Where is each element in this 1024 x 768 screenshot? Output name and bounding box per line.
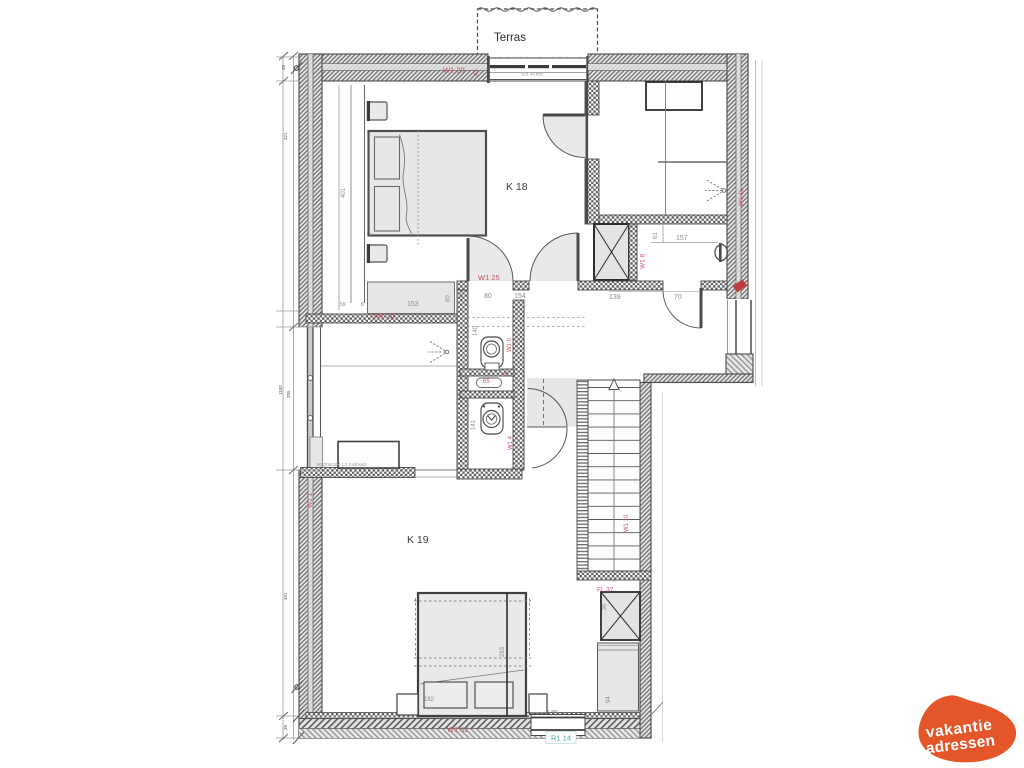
svg-text:W1 25: W1 25 xyxy=(478,273,500,282)
svg-text:182: 182 xyxy=(424,697,435,703)
svg-text:65: 65 xyxy=(504,371,510,377)
svg-text:90x200x200 1:1 0.60 kast: 90x200x200 1:1 0.60 kast xyxy=(317,462,367,467)
svg-text:140: 140 xyxy=(473,325,479,336)
svg-text:401: 401 xyxy=(283,592,288,600)
svg-text:K 19: K 19 xyxy=(407,534,429,546)
svg-text:Terras: Terras xyxy=(494,32,526,44)
svg-text:61: 61 xyxy=(653,232,659,239)
svg-text:154: 154 xyxy=(514,293,526,300)
svg-text:W1 24: W1 24 xyxy=(373,312,395,321)
svg-text:W1 0: W1 0 xyxy=(507,337,513,352)
svg-text:R1 14: R1 14 xyxy=(551,734,571,743)
svg-text:W1 1: W1 1 xyxy=(307,492,314,508)
svg-text:W1 8: W1 8 xyxy=(640,253,647,269)
svg-text:65: 65 xyxy=(483,379,490,385)
svg-text:153: 153 xyxy=(407,301,419,308)
svg-text:293: 293 xyxy=(500,646,506,657)
svg-text:60: 60 xyxy=(446,295,452,302)
svg-text:139: 139 xyxy=(609,294,621,301)
svg-text:59: 59 xyxy=(340,302,346,308)
svg-text:65: 65 xyxy=(459,292,465,298)
svg-text:38: 38 xyxy=(283,724,288,730)
svg-text:157: 157 xyxy=(676,235,688,242)
svg-text:80: 80 xyxy=(484,293,492,300)
svg-text:205: 205 xyxy=(286,390,291,398)
svg-text:70: 70 xyxy=(674,294,682,301)
svg-text:FL 37: FL 37 xyxy=(597,587,614,594)
svg-text:s.d. 45 kza: s.d. 45 kza xyxy=(522,72,543,77)
svg-text:W1 20: W1 20 xyxy=(443,66,465,75)
svg-text:421: 421 xyxy=(283,132,288,140)
svg-text:K 18: K 18 xyxy=(506,181,528,193)
svg-text:8: 8 xyxy=(361,302,364,308)
svg-text:W1 62: W1 62 xyxy=(447,725,469,734)
svg-text:38: 38 xyxy=(281,64,286,70)
svg-text:401: 401 xyxy=(341,187,347,198)
svg-text:94: 94 xyxy=(606,696,612,703)
svg-text:141: 141 xyxy=(471,419,477,430)
svg-text:W1 4: W1 4 xyxy=(508,435,514,450)
svg-text:W1 10: W1 10 xyxy=(624,514,630,532)
svg-text:1102: 1102 xyxy=(278,385,283,395)
svg-text:45: 45 xyxy=(474,69,480,76)
svg-text:20: 20 xyxy=(602,604,608,610)
svg-text:W1 11: W1 11 xyxy=(739,188,745,206)
